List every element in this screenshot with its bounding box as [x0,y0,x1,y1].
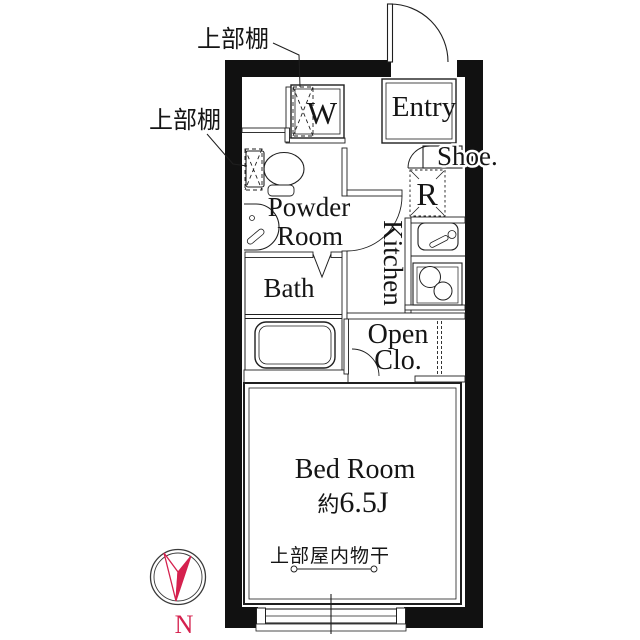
closet-left-wall [344,319,349,374]
washing-machine-label: W [307,95,338,131]
bedroom-size-value: 6.5J [339,486,389,519]
washer-bottom-wall [286,138,345,143]
counter-bottom-edge [405,305,465,310]
bedroom-size-label: 約6.5J [317,486,389,519]
bath-area [244,251,348,383]
upper-shelf-top-label: 上部棚 [197,26,269,53]
entry-door-arc [390,4,448,62]
toilet-icon [246,151,304,196]
bathtub-inner [259,326,331,364]
entry-label: Entry [392,91,457,123]
wall-bottom-left [225,607,258,628]
shoe-cabinet-label: Shoe. [437,141,498,171]
powder-top-wall [242,128,288,133]
open-closet-label-2: Clo. [374,345,421,376]
bath-top-wall [245,252,313,258]
wall-bottom-right [404,607,483,628]
bath-bottom-wall [244,370,348,383]
upper-shelf-side-label: 上部棚 [149,107,221,134]
powder-room-label-2: Room [277,221,343,251]
wall-left [225,60,242,628]
powder-top-wall-step [285,128,290,142]
kitchen-sink-icon [418,223,458,250]
refrigerator-label: R [416,176,438,212]
bedroom-size-prefix: 約 [317,492,339,517]
hanger-pipe-icon [438,321,442,375]
floor-plan: Entry Shoe. W R Powder Room Kitchen Bath… [0,0,640,640]
bedroom-label: Bed Room [295,454,416,485]
powder-right-wall-upper [342,148,347,196]
powder-door-leaf [347,190,402,196]
bath-folding-door-icon [313,254,331,277]
north-label: N [175,610,194,639]
counter-top-edge [411,217,465,223]
wall-top [225,60,391,77]
bath-top-wall-right [331,252,342,258]
bath-label: Bath [264,273,315,303]
stove-icon [413,263,462,305]
compass-north-icon [151,550,206,605]
closet-bottom-wall [415,376,465,382]
kitchen-label: Kitchen [378,220,408,306]
window-icon [256,594,406,634]
powder-room-label-1: Powder [268,192,351,222]
entry-door-leaf [388,4,393,62]
floor-plan-drawing: Entry Shoe. W R Powder Room Kitchen Bath… [0,0,640,640]
overhead-drying-label: 上部屋内物干 [270,545,390,567]
bathtub-icon [255,322,335,368]
